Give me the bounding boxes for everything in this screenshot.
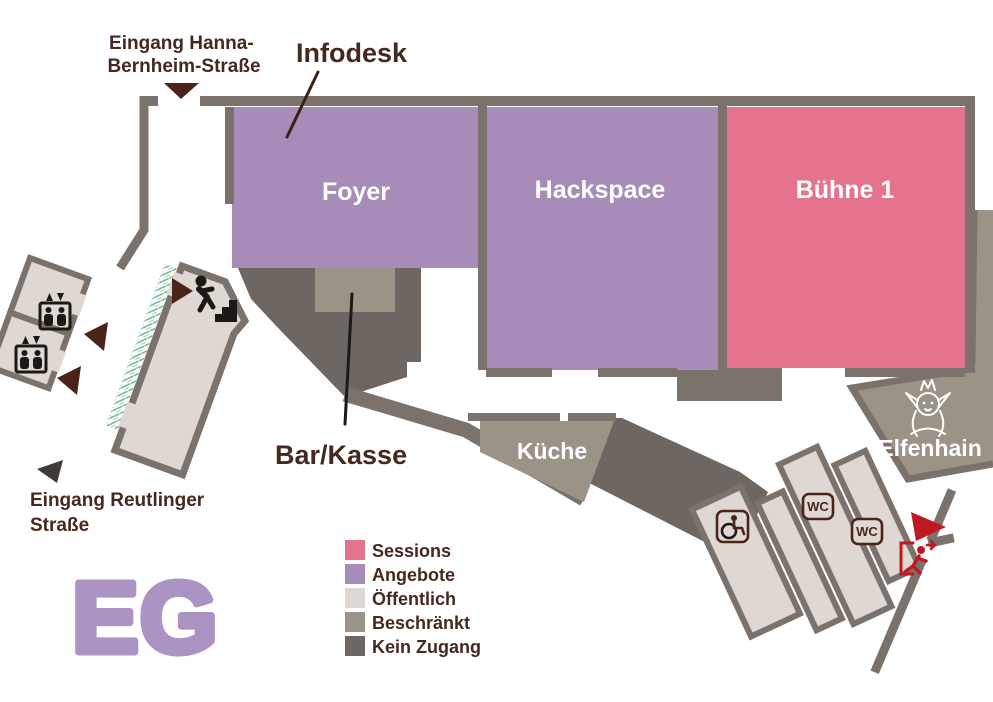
legend-swatch [345,564,365,584]
legend-item: Beschränkt [345,612,470,633]
wc-badge: WC [803,494,833,519]
entrance-arrow-reutlinger [37,460,63,483]
legend-swatch [345,588,365,608]
room-buehne-1 [726,107,965,368]
elevator-arrow [57,366,81,395]
wc-badge-label: WC [856,524,878,539]
entrance-hanna-label: Eingang Hanna- Bernheim-Straße [107,33,260,77]
room-hackspace [486,107,718,370]
entrance-reutlinger-line1: Eingang Reutlinger [30,490,205,511]
floor-plan-svg: WC WC Foyer Hackspace Bühne 1 Küche Elfe… [0,0,993,702]
legend-item: Kein Zugang [345,636,481,657]
elfenhain-label: Elfenhain [878,435,982,461]
kueche-wall [468,413,560,421]
entrance-hanna-line2: Bernheim-Straße [107,56,260,77]
wheelchair-icon [717,511,748,542]
legend-swatch [345,636,365,656]
legend-swatch [345,612,365,632]
legend-item-label: Beschränkt [372,613,470,633]
legend-item: Öffentlich [345,588,456,609]
legend-item: Angebote [345,564,455,585]
floor-plan-page: WC WC Foyer Hackspace Bühne 1 Küche Elfe… [0,0,993,702]
infodesk-label: Infodesk [296,38,408,68]
entrance-arrow-hanna [164,83,199,99]
kueche-label: Küche [517,438,587,464]
buehne-1-label: Bühne 1 [796,176,895,204]
legend-item-label: Angebote [372,565,455,585]
legend-item-label: Kein Zugang [372,637,481,657]
wc-badge-label: WC [807,499,829,514]
legend-swatch [345,540,365,560]
wc-badge: WC [852,519,882,544]
kueche-wall [568,413,616,421]
bar-area [315,268,395,312]
legend: Sessions Angebote Öffentlich Beschränkt … [345,540,481,657]
hackspace-label: Hackspace [535,176,666,204]
entrance-reutlinger-line2: Straße [30,515,89,536]
legend-item-label: Öffentlich [372,589,456,609]
floor-label: EG [72,562,218,674]
foyer-label: Foyer [322,178,390,206]
legend-item-label: Sessions [372,541,451,561]
entrance-reutlinger-label: Eingang Reutlinger Straße [30,490,209,536]
elevator-arrow [84,322,108,351]
entrance-hanna-line1: Eingang Hanna- [109,33,254,54]
bar-kasse-label: Bar/Kasse [275,440,407,470]
legend-item: Sessions [345,540,451,561]
no-access-area [677,368,782,401]
